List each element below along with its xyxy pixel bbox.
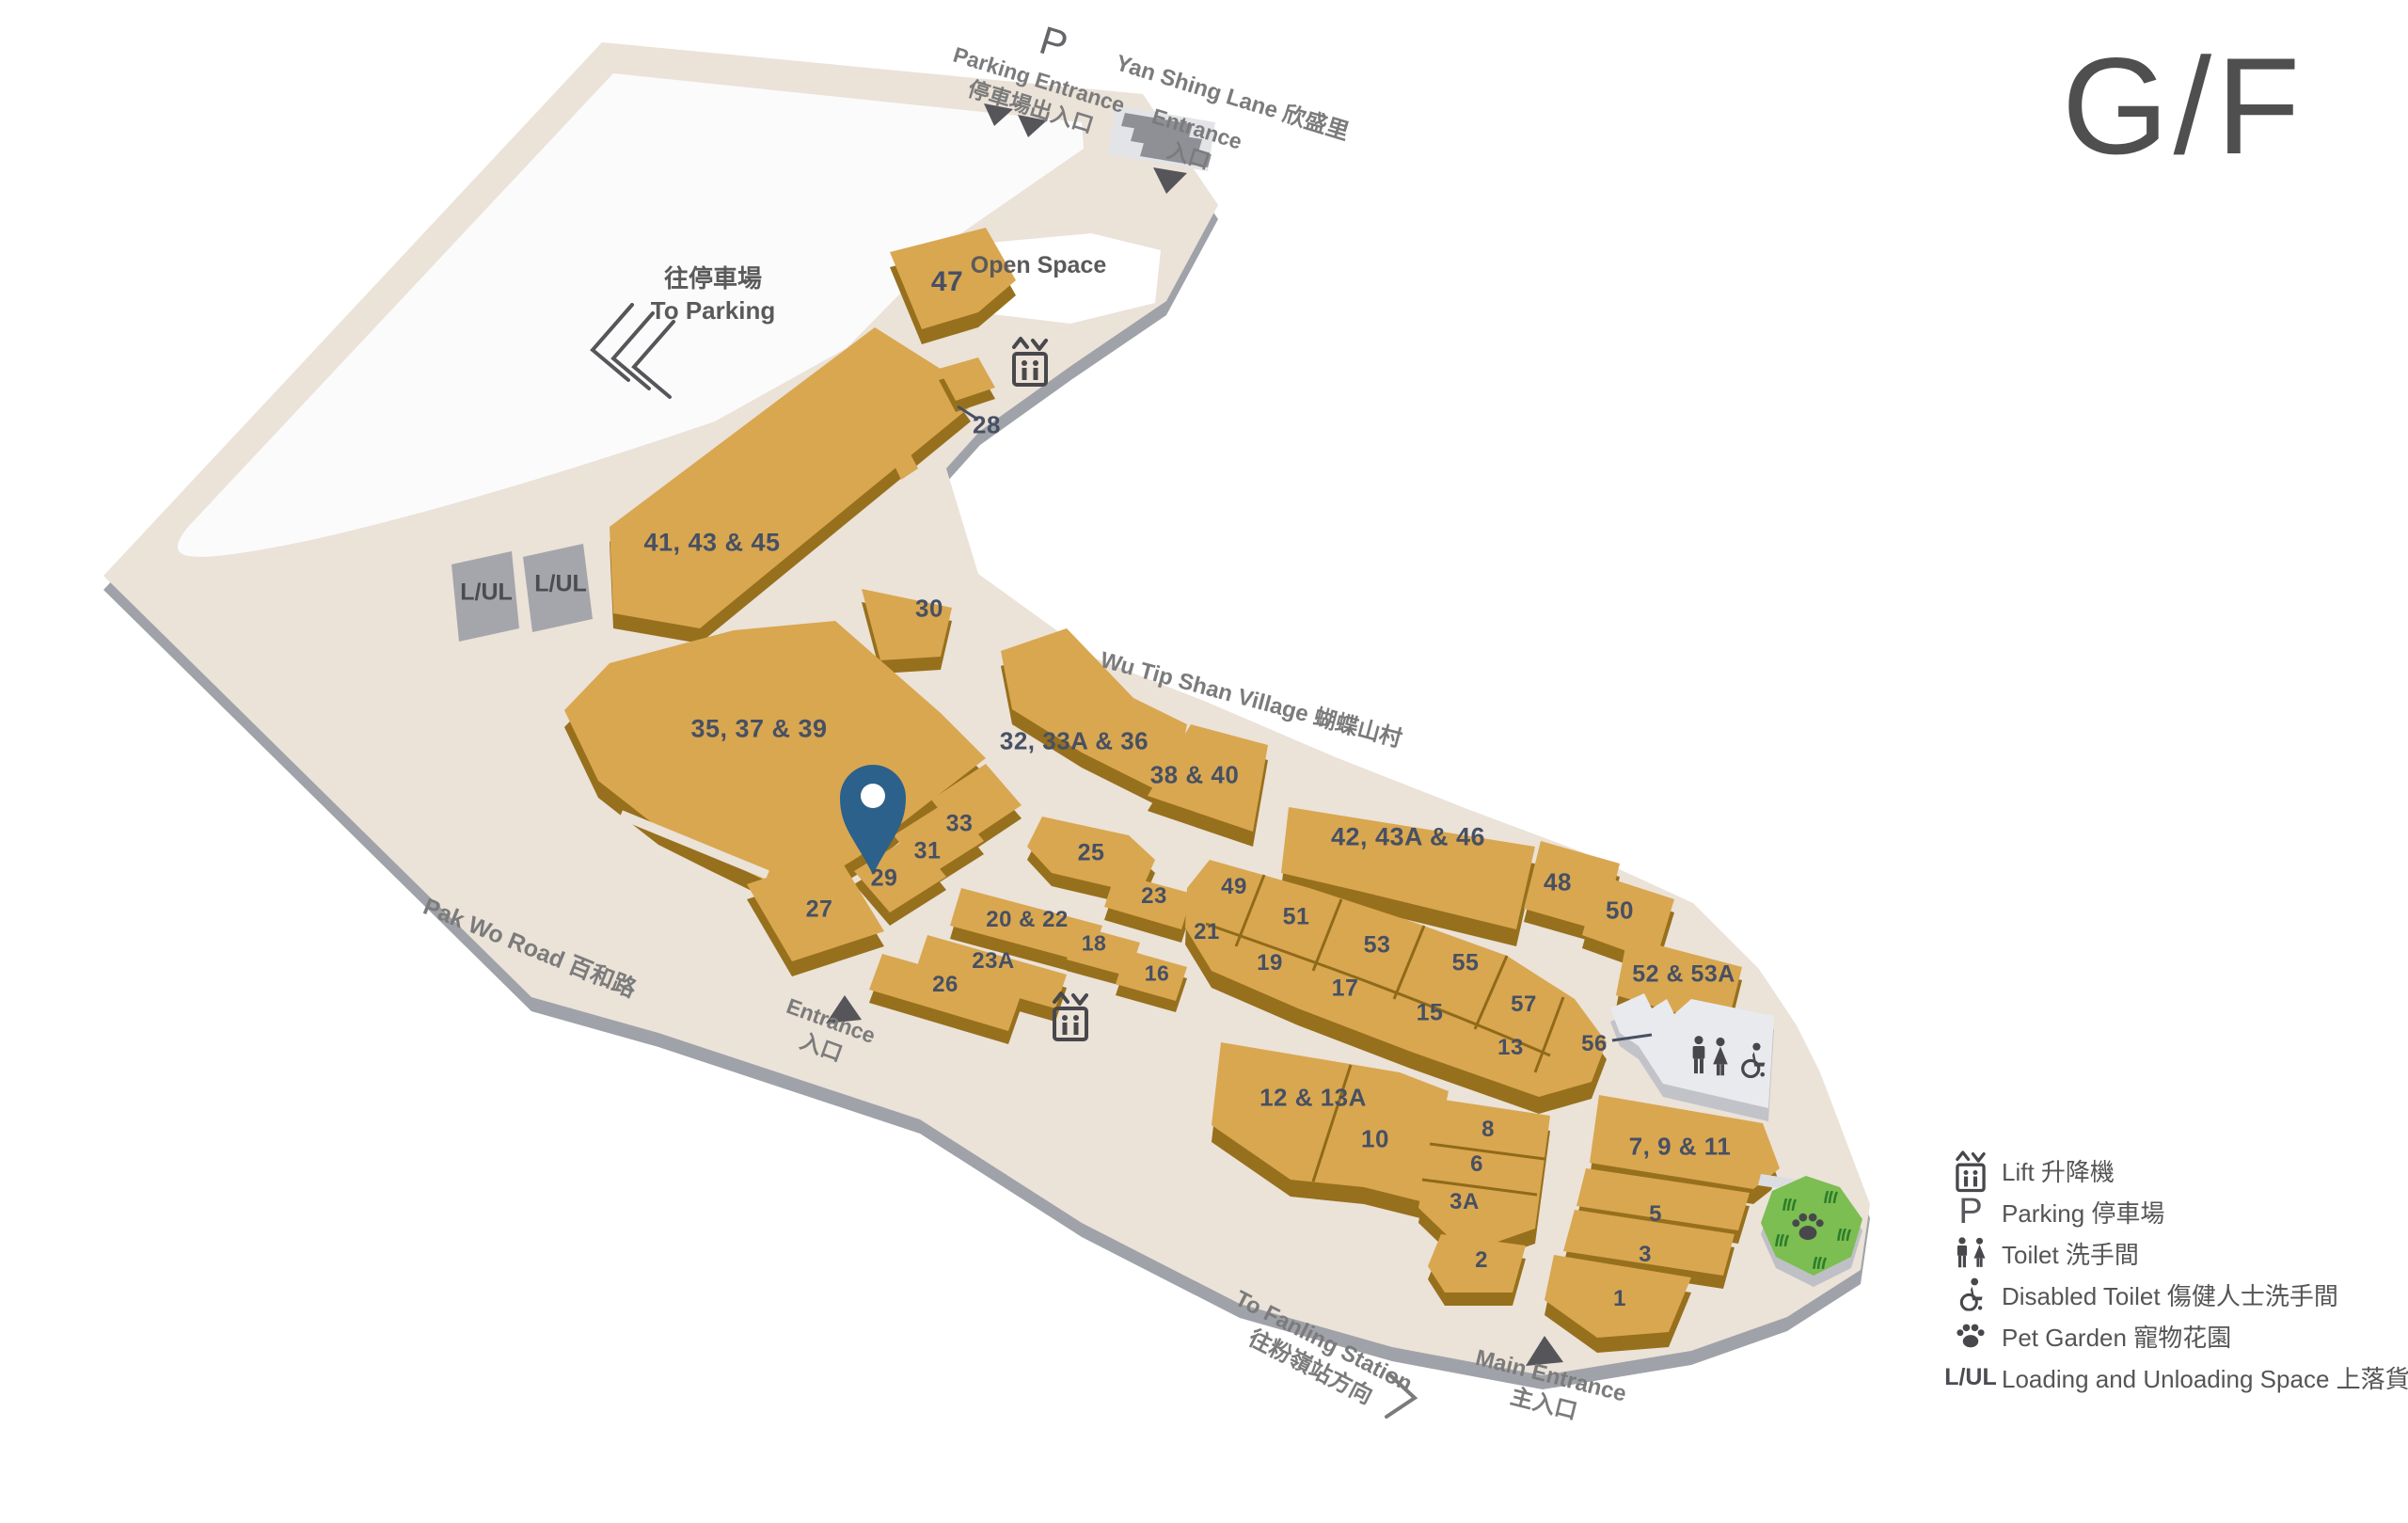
unit-label-32-33A-36[interactable]: 32, 33A & 36 [1000,727,1149,756]
unit-label-50[interactable]: 50 [1606,896,1634,926]
floor-title: G/F [2062,38,2305,175]
unit-label-20-22[interactable]: 20 & 22 [986,907,1069,933]
legend-row-toilet: Toilet 洗手間 [1940,1232,2408,1274]
legend-label: Disabled Toilet 傷健人士洗手間 [2002,1277,2338,1312]
unit-label-42-43A-46[interactable]: 42, 43A & 46 [1331,823,1485,852]
unit-label-29[interactable]: 29 [871,865,898,893]
unit-label-33[interactable]: 33 [946,811,974,838]
legend-label: Loading and Unloading Space 上落貨停車位 [2002,1360,2408,1395]
legend-label: Parking 停車場 [2002,1195,2164,1230]
pet-garden-icon [1940,1323,2002,1349]
unit-label-49[interactable]: 49 [1221,874,1247,900]
parking-icon: P [1940,1192,2002,1232]
legend-row-disabled-toilet: Disabled Toilet 傷健人士洗手間 [1940,1274,2408,1315]
unit-label-47[interactable]: 47 [931,266,963,298]
disabled-toilet-icon [1940,1277,2002,1311]
legend-label: Toilet 洗手間 [2002,1236,2139,1271]
unit-label-57[interactable]: 57 [1511,992,1537,1018]
unit-label-28[interactable]: 28 [973,411,1001,440]
unit-label-13[interactable]: 13 [1497,1035,1524,1061]
unit-label-12-13A[interactable]: 12 & 13A [1259,1084,1367,1113]
unit-label-3A[interactable]: 3A [1450,1189,1480,1215]
unit-label-38-40[interactable]: 38 & 40 [1150,761,1240,790]
unit-label-3[interactable]: 3 [1639,1242,1652,1268]
map-legend: Lift 升降機 P Parking 停車場 Toilet 洗手間 Disabl… [1940,1150,2408,1398]
unit-label-6[interactable]: 6 [1470,1151,1483,1178]
unit-label-48[interactable]: 48 [1544,868,1572,897]
unit-label-19[interactable]: 19 [1257,950,1283,976]
unit-label-7-9-11[interactable]: 7, 9 & 11 [1629,1133,1732,1162]
floorplan-page: 472841, 43 & 453035, 37 & 3932, 33A & 36… [0,0,2408,1523]
loading-unloading-icon: L/UL [1940,1364,2002,1391]
unit-label-52-53A[interactable]: 52 & 53A [1632,961,1735,989]
toilet-icon [1940,1237,2002,1269]
loading-unloading-label: L/UL [460,579,513,607]
unit-label-16[interactable]: 16 [1145,961,1170,987]
legend-row-loading-unloading: L/UL Loading and Unloading Space 上落貨停車位 [1940,1356,2408,1398]
unit-label-30[interactable]: 30 [915,595,943,624]
unit-label-15[interactable]: 15 [1417,1000,1444,1027]
legend-label: Lift 升降機 [2002,1153,2115,1188]
unit-label-2[interactable]: 2 [1475,1247,1488,1274]
unit-label-53[interactable]: 53 [1364,932,1391,960]
open-space-label: Open Space [971,250,1107,281]
unit-label-17[interactable]: 17 [1332,976,1359,1003]
lift-icon [1940,1148,2002,1193]
unit-label-1[interactable]: 1 [1613,1286,1626,1312]
unit-label-35-37-39[interactable]: 35, 37 & 39 [690,715,827,744]
legend-row-lift: Lift 升降機 [1940,1150,2408,1191]
unit-label-5[interactable]: 5 [1649,1201,1662,1228]
unit-label-21[interactable]: 21 [1194,919,1220,945]
unit-label-27[interactable]: 27 [806,896,833,924]
unit-label-51[interactable]: 51 [1283,904,1310,931]
legend-label: Pet Garden 寵物花園 [2002,1319,2231,1354]
unit-label-41-43-45[interactable]: 41, 43 & 45 [643,529,780,558]
unit-label-31[interactable]: 31 [914,838,942,865]
unit-label-8[interactable]: 8 [1481,1117,1495,1143]
unit-label-26[interactable]: 26 [932,972,958,998]
loading-unloading-label: L/UL [534,571,587,598]
unit-label-23A[interactable]: 23A [972,948,1015,975]
unit-label-25[interactable]: 25 [1078,840,1105,867]
to-parking-label: 往停車場To Parking [651,263,775,327]
unit-label-10[interactable]: 10 [1361,1125,1389,1154]
unit-label-23[interactable]: 23 [1141,883,1167,910]
legend-row-parking: P Parking 停車場 [1940,1191,2408,1232]
unit-label-56[interactable]: 56 [1581,1031,1608,1057]
unit-label-55[interactable]: 55 [1452,950,1480,977]
legend-row-pet-garden: Pet Garden 寵物花園 [1940,1315,2408,1356]
unit-label-18[interactable]: 18 [1082,931,1107,957]
